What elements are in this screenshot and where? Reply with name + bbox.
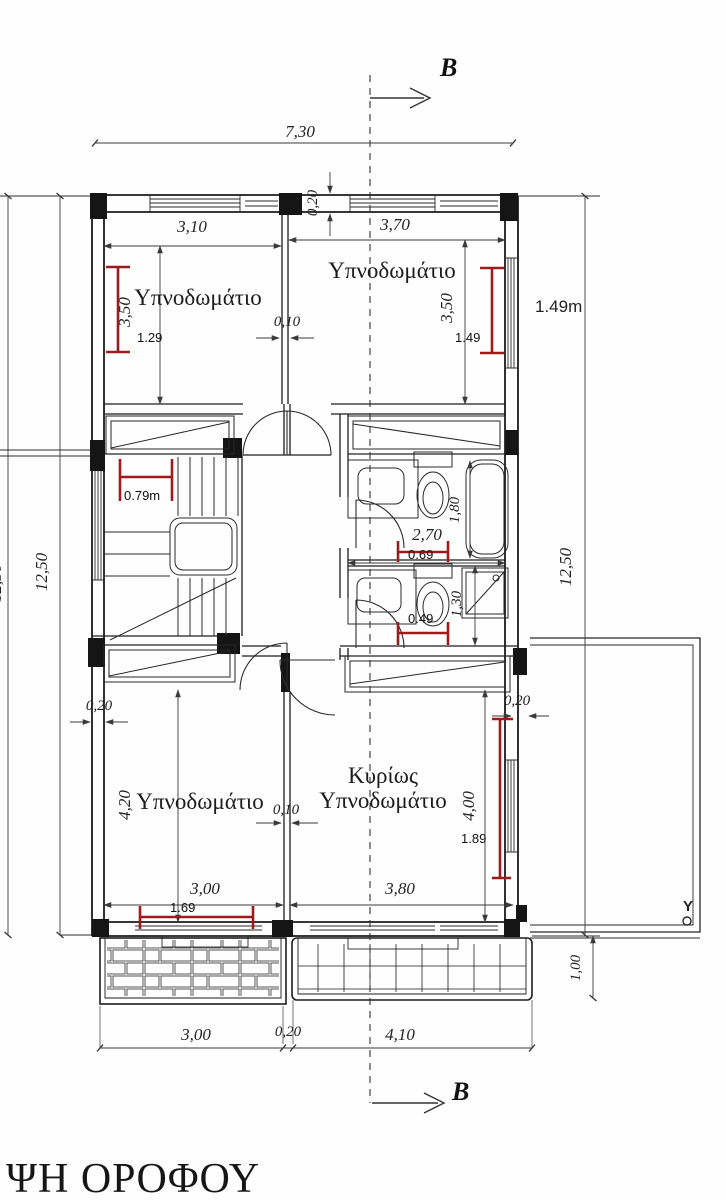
dim-top-wall: 0,20 [305,189,321,216]
column [516,905,527,922]
stair-core-inner [175,523,232,570]
dim-partition-bottom: 0,10 [273,802,300,818]
dim-bottom-left: 3,00 [180,1025,211,1044]
column [90,440,105,471]
bathtub-inner [470,464,504,554]
bathroom-west-wall [340,414,348,660]
balconies [100,938,532,1004]
window-top-left [150,195,240,212]
column [505,430,518,455]
sink-mid [358,468,404,504]
dim-top-overall: 7,30 [285,122,315,141]
dim-master-width: 3,80 [384,879,415,898]
floor-plan-page: Y B B [0,0,726,1200]
dim-bottom-right: 4,10 [385,1025,415,1044]
extension-lines [0,196,600,936]
door-double-top-bedrooms [243,411,331,455]
closet-bathroom [348,416,505,454]
column [513,648,527,675]
room-label-bedroom-tl: Υπνοδωμάτιο [134,285,261,310]
dim-tr-depth: 3,50 [437,293,456,324]
toilet-bowl-mid-inner [423,482,443,514]
measure-bedroom-tl: 1.29 [137,330,162,345]
dim-bath-lower-depth: 1,30 [449,590,465,617]
window-right-upper [505,258,518,368]
balcony-right-tiles [298,944,526,992]
measure-bath-lower: 0.49 [408,611,433,626]
terrace-point [683,917,691,925]
dim-bl-width: 3,00 [189,879,220,898]
door-jamb [281,653,290,692]
stair-treads-left [104,532,170,576]
column [92,919,109,937]
section-label-bottom: B [451,1077,469,1106]
dim-bath-width: 2,70 [412,525,442,544]
column [90,193,107,219]
dim-right: 12,50 [556,547,575,586]
red-measurement-labels: 1.29 1.49 1.49m 0.79m 0.69 0.49 1.69 1.8… [124,297,582,915]
section-arrow-top [370,88,430,108]
closet-stair-hall [106,416,234,454]
column [272,920,293,937]
balcony-left-tiles [107,940,279,996]
room-label-master-2: Υπνοδωμάτιο [319,788,446,813]
window-top-left-2 [245,201,278,206]
dim-left: 12,50 [32,552,51,591]
shower-diagonal [466,572,504,614]
window-bottom-right [310,926,498,930]
partition-top-bedrooms [282,212,288,404]
dimension-labels: 7,30 0,20 3,10 3,70 3,50 3,50 0,10 12,50… [0,122,584,1044]
window-sill-right [348,938,458,949]
section-arrow-bottom [372,1093,444,1113]
dim-master-depth: 4,00 [459,791,478,821]
bathtub-outer [466,460,508,558]
red-bar-bedroom-tr [480,268,504,353]
room-label-master-1: Κυρίως [348,763,418,788]
sink-lower [357,578,401,612]
toilet-bowl-mid [417,472,449,518]
floor-plan-drawing: Y B B [0,0,726,1200]
terrace-inner [530,645,700,938]
dim-right-wall: 0,20 [504,693,531,709]
window-top-right [350,195,435,212]
room-labels: Υπνοδωμάτιο Υπνοδωμάτιο Υπνοδωμάτιο Κυρί… [134,258,455,814]
column [279,193,302,215]
measure-bedroom-tr-outside: 1.49m [535,297,582,316]
page-title: ΨΗ ΟΡΟΦΟΥ [6,1156,260,1200]
dim-tr-width: 3,70 [379,215,410,234]
dim-extensions-bottom [100,1000,532,1048]
dim-balcony-depth: 1,00 [568,954,584,981]
window-bottom-left [135,926,262,930]
stair-walk-line [110,578,236,640]
stair-core-outer [170,518,237,575]
measure-bedroom-bl: 1.69 [170,900,195,915]
terrace-outer [530,638,700,932]
dim-bottom-gap: 0,20 [275,1024,302,1040]
measure-stair-hall: 0.79m [124,488,160,503]
balcony-right-outline [292,938,532,1000]
dim-left-outer: 12,50 [0,563,5,602]
dim-partition-top: 0,10 [274,314,301,330]
adjacent-structure [0,196,600,936]
column [88,638,105,667]
bottom-wall [92,922,518,936]
section-label-top: B [439,53,457,82]
dim-bath-depth: 1,80 [447,496,463,523]
right-wall [505,196,518,936]
dim-tl-width: 3,10 [176,217,207,236]
terrace [530,638,700,938]
column [500,193,518,221]
dim-bl-depth: 4,20 [115,790,134,820]
room-label-bedroom-bl: Υπνοδωμάτιο [136,789,263,814]
red-bar-master [492,719,513,878]
window-top-right-2 [440,201,498,206]
stair-treads-upper [178,457,238,516]
window-right-master [505,760,518,852]
dim-left-wall: 0,20 [86,698,113,714]
closet-bedroom-bl [104,645,235,682]
measure-master: 1.89 [461,831,486,846]
door-bathroom-mid [356,500,404,548]
measure-bedroom-tr: 1.49 [455,330,480,345]
terrace-point-label: Y [683,898,693,915]
wall-under-top-bedrooms [104,404,505,414]
window-left-stair [92,470,104,580]
room-label-bedroom-tr: Υπνοδωμάτιο [328,258,455,283]
measure-bath-mid: 0.69 [408,547,433,562]
column [223,438,242,458]
